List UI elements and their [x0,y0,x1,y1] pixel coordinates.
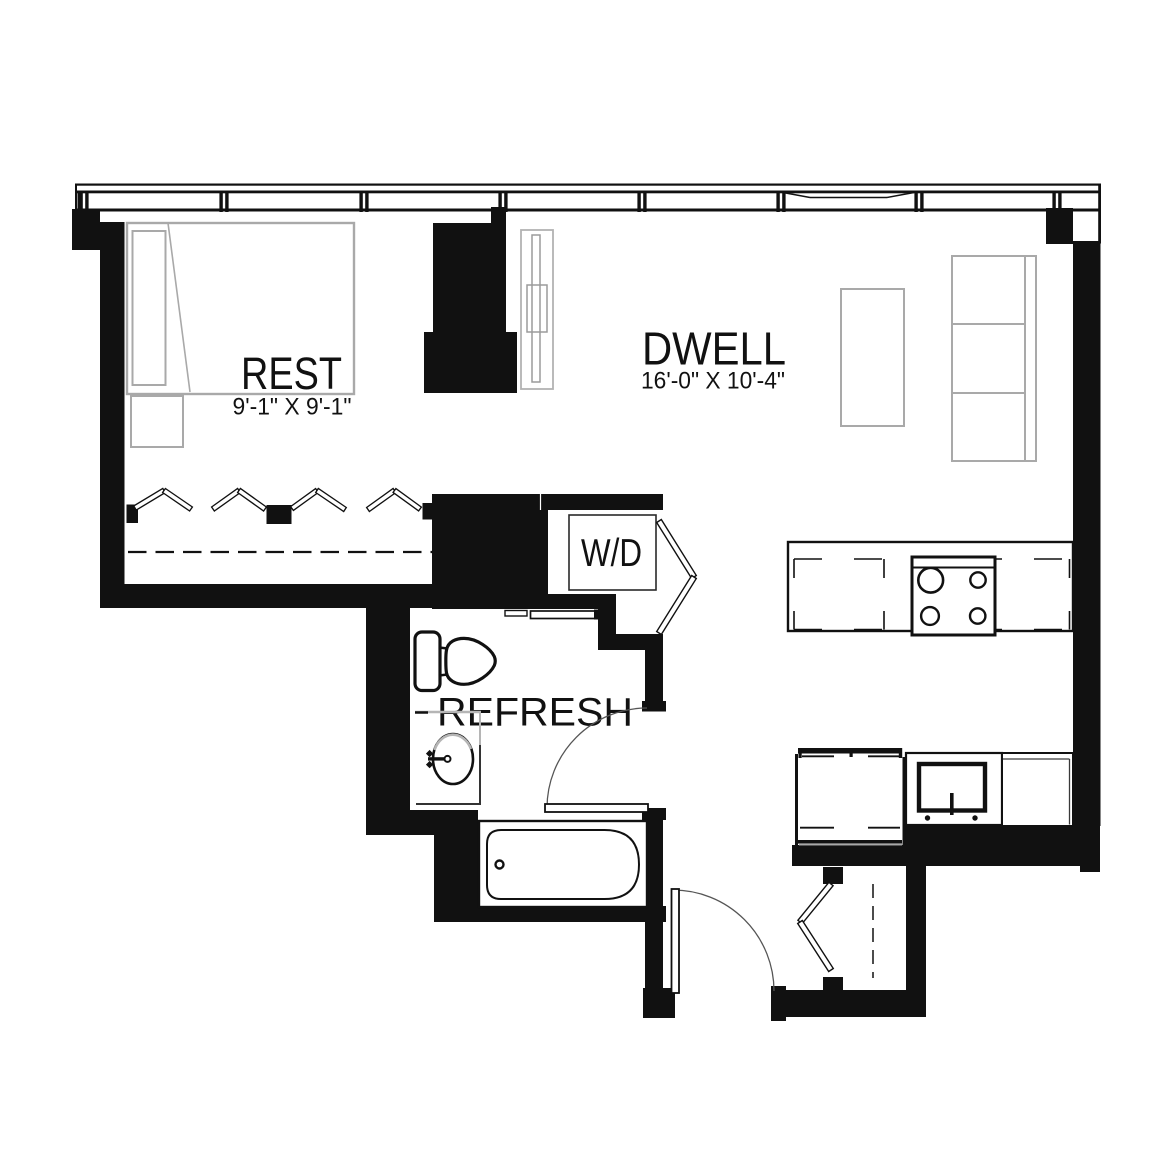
svg-text:16'-0" X 10'-4": 16'-0" X 10'-4" [641,368,785,395]
svg-text:9'-1" X 9'-1": 9'-1" X 9'-1" [233,394,352,421]
svg-text:REST: REST [241,348,342,399]
svg-text:W/D: W/D [581,532,642,575]
